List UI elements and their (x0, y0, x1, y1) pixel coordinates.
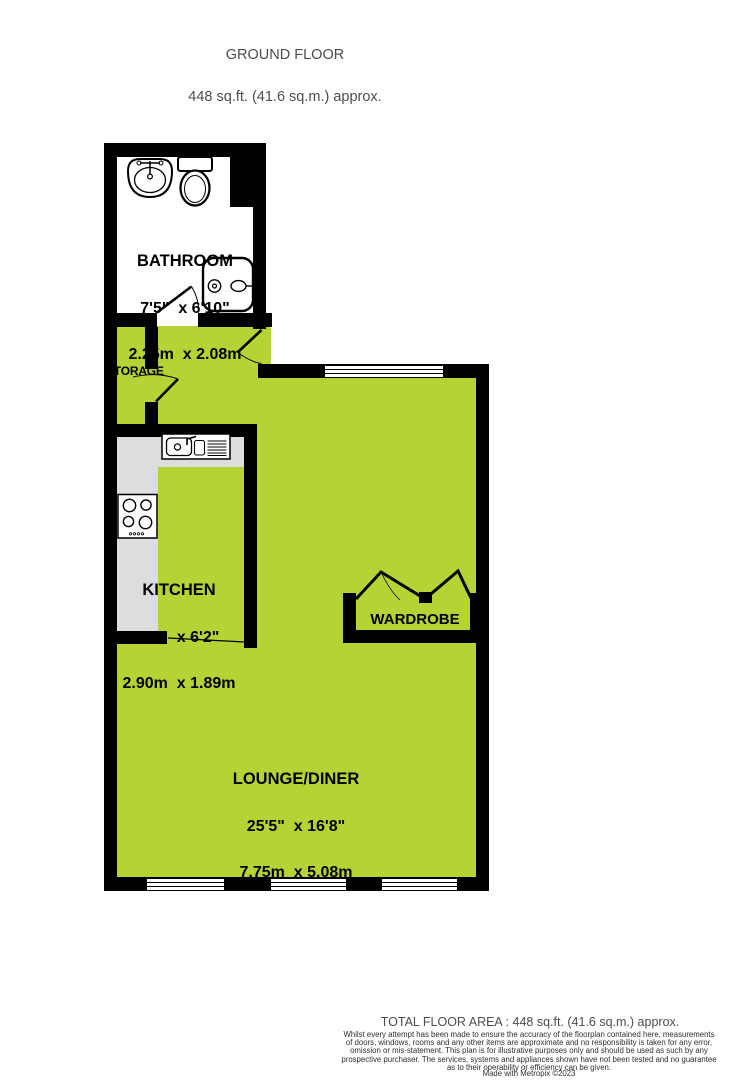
disclaimer-text: Whilst every attempt has been made to en… (319, 1031, 739, 1072)
floor-area-subtitle: 448 sq.ft. (41.6 sq.m.) approx. (188, 91, 381, 105)
lounge-diner-dims-imperial: 25'5" x 16'8" (233, 819, 360, 835)
wall-kitchen-right (244, 424, 257, 648)
bathroom-dims-imperial: 7'5" x 6'10" (129, 301, 242, 317)
window-pane-line (382, 886, 457, 887)
lounge-diner-label: LOUNGE/DINER 25'5" x 16'8" 7.75m x 5.08m (233, 741, 360, 912)
wall-bathroom-top (104, 143, 266, 157)
wall-wardrobe-right (470, 593, 483, 643)
kitchen-dims-metric: 2.90m x 1.89m (123, 676, 236, 692)
window-bottom-1 (147, 879, 224, 890)
kitchen-name: KITCHEN (123, 583, 236, 599)
window-pane-line (325, 373, 443, 374)
lounge-diner-dims-metric: 7.75m x 5.08m (233, 865, 360, 881)
wall-storage-stub (145, 402, 158, 424)
toilet-icon (178, 157, 212, 206)
window-lounge-top (325, 366, 443, 377)
window-pane-line (147, 882, 224, 883)
total-floor-area: TOTAL FLOOR AREA : 448 sq.ft. (41.6 sq.m… (381, 1015, 680, 1029)
wardrobe-label: WARDROBE (370, 611, 459, 628)
bathroom-name: BATHROOM (129, 254, 242, 270)
wall-kitchen-top (104, 424, 249, 437)
bathroom-duct-block (230, 157, 253, 207)
floorplan-header: GROUND FLOOR 448 sq.ft. (41.6 sq.m.) app… (188, 22, 381, 131)
wall-wardrobe-bottom (343, 630, 483, 643)
floor-title: GROUND FLOOR (188, 49, 381, 63)
window-pane-line (325, 369, 443, 370)
kitchen-dims-imperial: 9'6" x 6'2" (123, 630, 236, 646)
wall-outer-left (104, 143, 117, 891)
kitchen-label: KITCHEN 9'6" x 6'2" 2.90m x 1.89m (123, 552, 236, 723)
window-pane-line (147, 886, 224, 887)
wall-bathroom-right (253, 143, 266, 329)
lounge-diner-name: LOUNGE/DINER (233, 772, 360, 788)
bathroom-label: BATHROOM 7'5" x 6'10" 2.25m x 2.08m (129, 223, 242, 394)
bathroom-dims-metric: 2.25m x 2.08m (129, 347, 242, 363)
window-pane-line (382, 882, 457, 883)
floorplan: GROUND FLOOR 448 sq.ft. (41.6 sq.m.) app… (0, 0, 741, 1080)
metropix-credit: Made with Metropix ©2023 (483, 1069, 576, 1078)
basin-icon (128, 159, 172, 197)
window-bottom-3 (382, 879, 457, 890)
